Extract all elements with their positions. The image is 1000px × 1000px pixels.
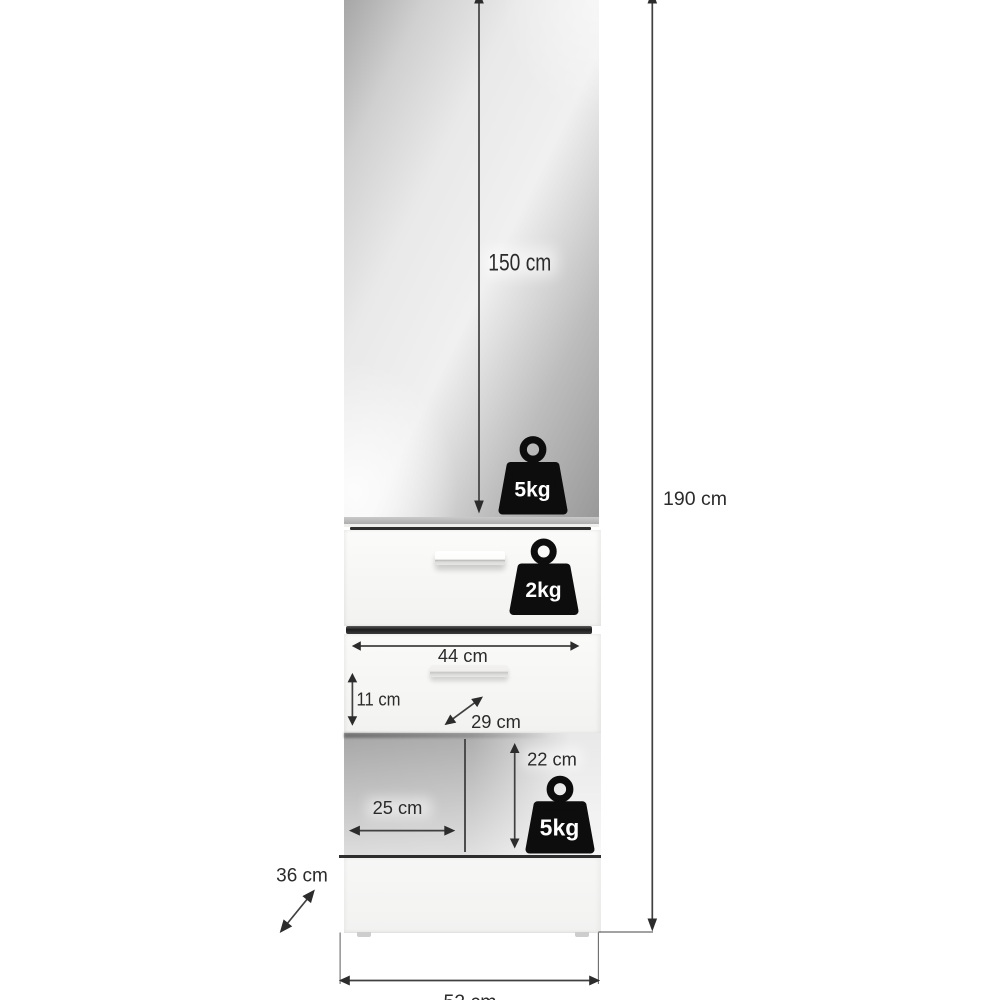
svg-text:190 cm: 190 cm — [663, 488, 727, 510]
svg-text:52 cm: 52 cm — [443, 991, 496, 1000]
svg-text:5kg: 5kg — [540, 815, 580, 841]
svg-text:29 cm: 29 cm — [471, 711, 521, 732]
svg-text:44 cm: 44 cm — [438, 645, 488, 666]
svg-text:2kg: 2kg — [525, 579, 561, 602]
svg-text:36 cm: 36 cm — [276, 865, 328, 886]
svg-text:22 cm: 22 cm — [527, 748, 577, 769]
svg-text:11 cm: 11 cm — [357, 688, 401, 709]
svg-text:5kg: 5kg — [514, 479, 550, 502]
svg-text:150 cm: 150 cm — [488, 249, 551, 276]
svg-text:25 cm: 25 cm — [373, 797, 423, 818]
